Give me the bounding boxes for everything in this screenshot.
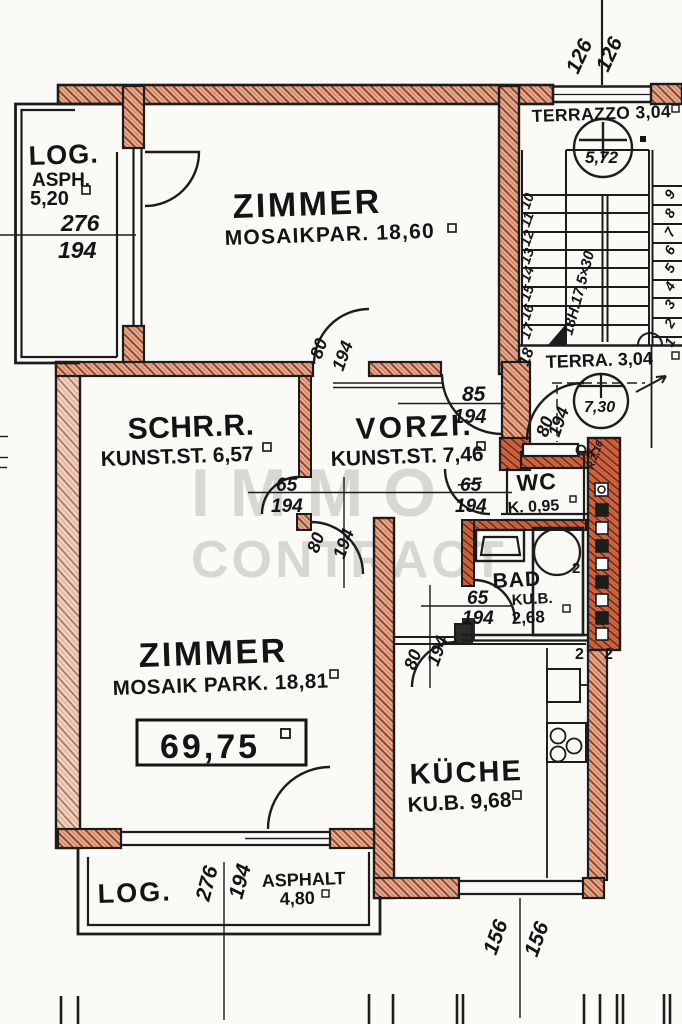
- svg-text:ZIMMER: ZIMMER: [138, 632, 288, 675]
- svg-text:LOG.: LOG.: [28, 139, 99, 171]
- svg-text:194: 194: [271, 496, 303, 517]
- svg-text:276: 276: [60, 210, 100, 236]
- svg-text:4,80: 4,80: [279, 888, 315, 909]
- svg-text:K. 0,95: K. 0,95: [507, 497, 560, 517]
- svg-text:65: 65: [460, 475, 482, 496]
- svg-text:7,30: 7,30: [584, 399, 615, 416]
- svg-text:65: 65: [276, 475, 298, 496]
- svg-text:69,75: 69,75: [160, 728, 260, 766]
- svg-text:2: 2: [572, 560, 580, 577]
- svg-text:65: 65: [467, 588, 489, 609]
- svg-text:85: 85: [462, 383, 486, 406]
- svg-text:2: 2: [575, 646, 584, 663]
- svg-text:5,72: 5,72: [585, 148, 619, 167]
- svg-text:194: 194: [462, 608, 494, 629]
- svg-text:LOG.: LOG.: [97, 876, 172, 909]
- svg-text:194: 194: [455, 496, 487, 517]
- svg-text:SCHR.R.: SCHR.R.: [127, 409, 255, 446]
- svg-text:WC: WC: [516, 468, 558, 496]
- svg-text:BAD: BAD: [492, 567, 542, 593]
- svg-text:194: 194: [453, 406, 486, 428]
- svg-text:194: 194: [58, 237, 97, 263]
- svg-text:TERRA. 3,04: TERRA. 3,04: [545, 348, 653, 372]
- svg-text:ZIMMER: ZIMMER: [232, 183, 382, 226]
- svg-text:2: 2: [604, 646, 613, 663]
- svg-text:2,68: 2,68: [511, 607, 545, 628]
- svg-text:KÜCHE: KÜCHE: [409, 754, 523, 791]
- svg-text:KU.B.: KU.B.: [511, 590, 553, 609]
- svg-text:5,20: 5,20: [30, 188, 69, 210]
